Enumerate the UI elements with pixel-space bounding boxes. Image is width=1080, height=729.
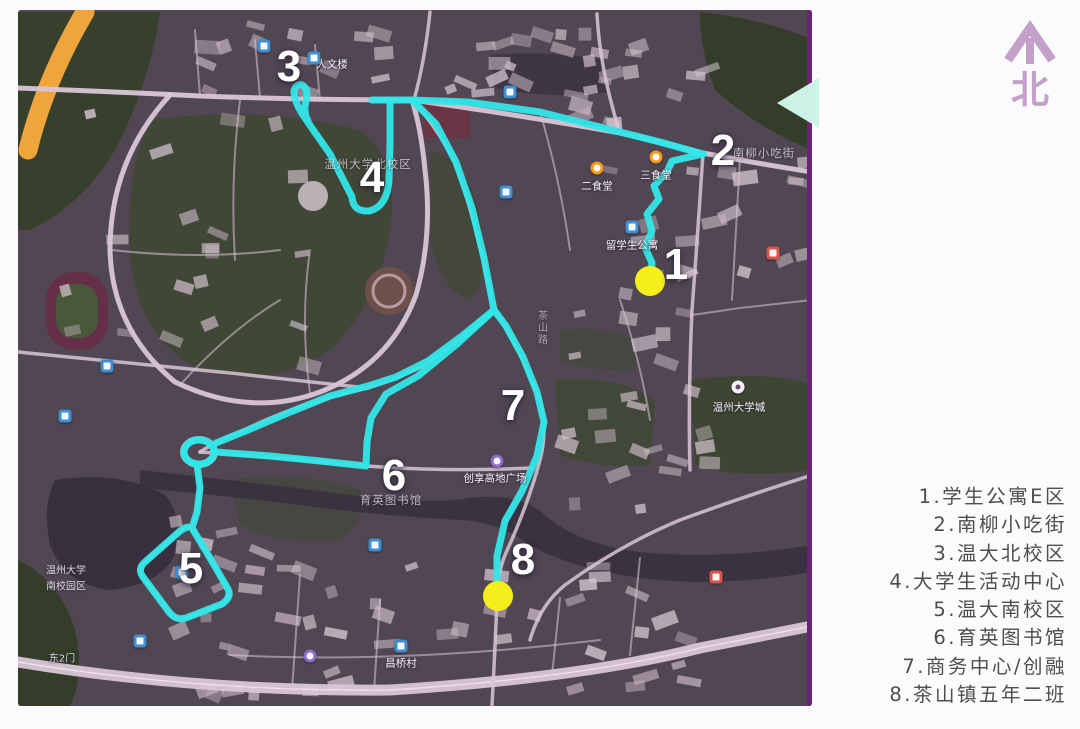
map-overlays: 12345678人文楼二食堂三食堂留学生公寓温州大学北校区南柳小吃街育英图书馆创… bbox=[18, 10, 812, 706]
orange-poi-icon bbox=[650, 151, 663, 164]
poi-label: 茶山路 bbox=[534, 310, 549, 346]
poi-label: 南校园区 bbox=[46, 578, 86, 593]
satellite-map[interactable]: 12345678人文楼二食堂三食堂留学生公寓温州大学北校区南柳小吃街育英图书馆创… bbox=[18, 10, 812, 706]
legend-item: 2.南柳小吃街 bbox=[889, 511, 1067, 539]
north-arrow-icon bbox=[999, 12, 1061, 64]
orange-poi-icon bbox=[591, 162, 604, 175]
blue-poi-icon bbox=[504, 86, 517, 99]
blue-poi-icon bbox=[101, 360, 114, 373]
purple-poi-icon bbox=[304, 650, 317, 663]
poi-label: 东2门 bbox=[49, 650, 75, 665]
poi-label: 创享高地广场 bbox=[464, 471, 527, 486]
route-stop-marker-1[interactable]: 1 bbox=[664, 240, 688, 290]
poi-label: 昌桥村 bbox=[385, 656, 417, 671]
poi-label: 二食堂 bbox=[581, 179, 613, 194]
legend-item: 3.温大北校区 bbox=[889, 540, 1067, 568]
legend-item: 4.大学生活动中心 bbox=[889, 568, 1067, 596]
route-stop-marker-5[interactable]: 5 bbox=[179, 544, 203, 594]
direction-triangle bbox=[770, 70, 825, 140]
red-poi-icon bbox=[710, 571, 723, 584]
legend-item: 8.茶山镇五年二班 bbox=[889, 681, 1067, 709]
route-stop-marker-3[interactable]: 3 bbox=[277, 42, 301, 92]
blue-poi-icon bbox=[500, 186, 513, 199]
poi-label: 温州大学 bbox=[46, 562, 86, 577]
red-poi-icon bbox=[767, 247, 780, 260]
legend-item: 6.育英图书馆 bbox=[889, 624, 1067, 652]
legend-item: 1.学生公寓E区 bbox=[889, 483, 1067, 511]
poi-label: 温州大学城 bbox=[713, 400, 766, 415]
blue-poi-icon bbox=[395, 640, 408, 653]
north-indicator: 北 bbox=[999, 12, 1061, 112]
poi-label: 三食堂 bbox=[640, 168, 672, 183]
poi-label: 南柳小吃街 bbox=[733, 145, 796, 161]
white-poi-icon bbox=[732, 381, 745, 394]
blue-poi-icon bbox=[59, 410, 72, 423]
legend-item: 5.温大南校区 bbox=[889, 596, 1067, 624]
route-stop-marker-8[interactable]: 8 bbox=[511, 535, 535, 585]
page: 12345678人文楼二食堂三食堂留学生公寓温州大学北校区南柳小吃街育英图书馆创… bbox=[0, 0, 1080, 729]
blue-poi-icon bbox=[369, 539, 382, 552]
blue-poi-icon bbox=[134, 635, 147, 648]
poi-label: 留学生公寓 bbox=[606, 238, 659, 253]
route-stop-marker-6[interactable]: 6 bbox=[382, 451, 406, 501]
route-stop-marker-2[interactable]: 2 bbox=[711, 126, 735, 176]
legend: 1.学生公寓E区2.南柳小吃街3.温大北校区4.大学生活动中心5.温大南校区6.… bbox=[889, 483, 1067, 709]
route-stop-marker-7[interactable]: 7 bbox=[501, 381, 525, 431]
blue-poi-icon bbox=[626, 221, 639, 234]
purple-poi-icon bbox=[491, 455, 504, 468]
blue-poi-icon bbox=[308, 52, 321, 65]
legend-item: 7.商务中心/创融 bbox=[889, 653, 1067, 681]
blue-poi-icon bbox=[258, 40, 271, 53]
poi-label: 人文楼 bbox=[316, 57, 348, 72]
route-stop-marker-4[interactable]: 4 bbox=[360, 153, 384, 203]
north-label: 北 bbox=[999, 70, 1061, 112]
